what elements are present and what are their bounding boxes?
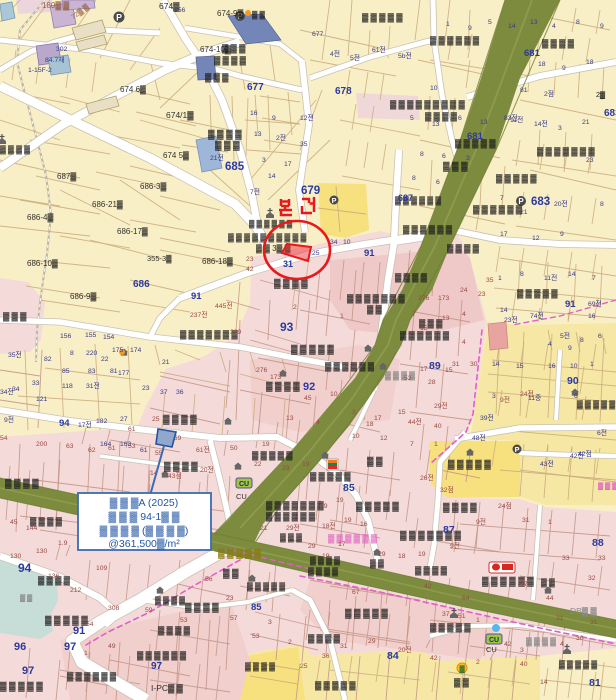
svg-text:50: 50 [230,445,238,452]
svg-text:▓ ▓ ▓ ▓: ▓ ▓ ▓ ▓ [163,414,197,425]
svg-text:10: 10 [330,391,338,398]
svg-text:53: 53 [180,617,188,624]
svg-text:5전: 5전 [350,53,360,62]
svg-text:91: 91 [364,248,375,259]
svg-text:30: 30 [470,361,478,368]
svg-text:674-10▓: 674-10▓ [200,45,231,55]
svg-text:686-18▓: 686-18▓ [202,257,233,267]
svg-text:17: 17 [284,161,292,168]
svg-text:47: 47 [520,581,528,588]
svg-text:21: 21 [260,525,268,532]
svg-text:34: 34 [330,239,338,246]
svg-text:8: 8 [580,337,584,344]
svg-text:92: 92 [303,381,315,393]
svg-text:91: 91 [565,299,576,310]
svg-text:P: P [116,12,122,22]
svg-text:220: 220 [86,350,98,357]
svg-text:200: 200 [36,441,48,448]
svg-text:677: 677 [247,82,264,93]
svg-text:83: 83 [88,368,96,375]
svg-text:2: 2 [288,639,292,646]
svg-text:685: 685 [225,161,245,173]
svg-text:1: 1 [476,617,480,624]
svg-text:39전: 39전 [480,413,494,422]
svg-text:81: 81 [110,368,118,375]
svg-text:23: 23 [246,256,254,263]
svg-text:18: 18 [538,61,546,68]
svg-text:1: 1 [548,519,552,526]
svg-text:44전: 44전 [408,417,422,426]
svg-text:▓ ▓ ▓: ▓ ▓ ▓ [443,161,468,172]
svg-text:42: 42 [430,655,438,662]
svg-text:10: 10 [570,363,578,370]
svg-text:17: 17 [420,366,428,373]
svg-text:355-3▓: 355-3▓ [147,254,172,264]
svg-text:33: 33 [32,380,40,387]
svg-text:1-15F-2: 1-15F-2 [28,67,52,74]
svg-text:▓ ▓ ▓ ▓ ▓ ▓ ▓ ▓ ▓: ▓ ▓ ▓ ▓ ▓ ▓ ▓ ▓ ▓ [390,99,465,110]
svg-text:4: 4 [462,339,466,346]
svg-text:25: 25 [300,663,308,670]
svg-text:683: 683 [531,196,550,208]
svg-text:12전: 12전 [300,113,314,122]
svg-text:▓ ▓ ▓ ▓: ▓ ▓ ▓ ▓ [443,502,477,513]
svg-text:686-21▓: 686-21▓ [92,200,123,210]
svg-text:173: 173 [438,295,450,302]
svg-text:212: 212 [70,587,82,594]
svg-text:28: 28 [428,379,436,386]
svg-text:7: 7 [412,311,416,318]
svg-text:▓ ▓: ▓ ▓ [20,594,33,602]
svg-text:▓ ▓ ▓ ▓: ▓ ▓ ▓ ▓ [308,633,341,644]
svg-text:▓ ▓ ▓ ▓: ▓ ▓ ▓ ▓ [308,567,338,577]
svg-text:85: 85 [62,368,70,375]
svg-text:156: 156 [60,333,72,340]
svg-text:17: 17 [500,231,508,238]
svg-text:1: 1 [590,361,594,368]
svg-text:16: 16 [548,363,556,370]
svg-text:19: 19 [344,517,352,524]
svg-text:61: 61 [108,445,116,452]
svg-text:▓ ▓ ▓ ▓ ▓: ▓ ▓ ▓ ▓ ▓ [577,400,615,410]
svg-text:276: 276 [418,295,430,302]
svg-text:9전: 9전 [500,395,510,404]
svg-text:19: 19 [418,551,426,558]
svg-text:48전: 48전 [472,433,486,442]
svg-text:23전: 23전 [504,315,518,324]
svg-text:4전: 4전 [330,49,340,58]
svg-text:18: 18 [366,421,374,428]
svg-text:CU: CU [489,637,499,644]
svg-text:19: 19 [322,553,330,560]
svg-text:302: 302 [56,46,68,53]
svg-text:31: 31 [556,615,564,622]
svg-text:681: 681 [467,131,484,142]
svg-text:3: 3 [352,409,356,416]
svg-text:16: 16 [588,313,596,320]
svg-text:▓ ▓ ▓ ▓ ▓: ▓ ▓ ▓ ▓ ▓ [218,548,261,559]
svg-text:229: 229 [230,329,242,336]
svg-text:130: 130 [36,548,48,555]
svg-text:@361,500▓/m²: @361,500▓/m² [108,538,180,550]
svg-text:1: 1 [84,650,88,657]
svg-text:▓ ▓ ▓ ▓ (▓ ▓ ▓ ▓): ▓ ▓ ▓ ▓ (▓ ▓ ▓ ▓) [100,525,189,537]
svg-text:7: 7 [410,441,414,448]
svg-text:▓ ▓ ▓ ▓: ▓ ▓ ▓ ▓ [266,381,300,392]
svg-text:9전: 9전 [476,517,486,526]
svg-text:1: 1 [498,275,502,282]
svg-text:14전: 14전 [534,119,548,128]
svg-text:15: 15 [420,325,428,332]
svg-text:▓ ▓ ▓ ▓: ▓ ▓ ▓ ▓ [164,461,198,472]
svg-text:▓ ▓ ▓ ▓ ▓ ▓ ▓: ▓ ▓ ▓ ▓ ▓ ▓ ▓ [266,500,324,511]
svg-text:35: 35 [300,141,308,148]
svg-text:308: 308 [108,605,120,612]
svg-text:51: 51 [458,613,466,620]
svg-text:20전: 20전 [200,465,214,474]
svg-text:▓ ▓ ▓ ▓: ▓ ▓ ▓ ▓ [395,272,428,283]
svg-text:9: 9 [560,231,564,238]
svg-text:3: 3 [262,157,266,164]
svg-text:6전: 6전 [597,428,607,437]
svg-text:156: 156 [174,7,186,14]
svg-text:14: 14 [540,679,548,686]
svg-text:687▓: 687▓ [57,172,76,182]
svg-text:14: 14 [492,361,500,368]
svg-text:10: 10 [352,433,360,440]
svg-text:683: 683 [604,108,616,119]
svg-text:687: 687 [398,193,413,203]
svg-text:69전: 69전 [588,299,602,308]
svg-text:43점: 43점 [168,472,182,480]
svg-text:33: 33 [598,555,606,562]
svg-text:▓ ▓ ▓ ▓ ▓: ▓ ▓ ▓ ▓ ▓ [310,471,351,482]
svg-text:▓ ▓ ▓ ▓ ▓: ▓ ▓ ▓ ▓ ▓ [559,660,597,670]
svg-text:5: 5 [488,19,492,26]
svg-text:26전: 26전 [420,473,434,482]
svg-text:31: 31 [283,259,293,269]
svg-text:61전: 61전 [196,445,210,454]
svg-text:8: 8 [576,19,580,26]
svg-text:CU: CU [239,481,249,488]
svg-text:2▓: 2▓ [596,91,606,99]
svg-text:▓ ▓ ▓ ▓: ▓ ▓ ▓ ▓ [158,625,191,636]
svg-text:674 6▓: 674 6▓ [120,85,146,95]
svg-text:▓ ▓ ▓: ▓ ▓ ▓ [280,533,302,543]
svg-text:23: 23 [586,157,594,164]
svg-text:15: 15 [516,363,524,370]
svg-text:45: 45 [304,395,312,402]
svg-text:▓ ▓: ▓ ▓ [223,568,239,579]
svg-text:▓ ▓ ▓ ▓ ▓: ▓ ▓ ▓ ▓ ▓ [362,12,403,23]
svg-text:3: 3 [492,393,496,400]
svg-text:▓ ▓ ▓ ▓: ▓ ▓ ▓ ▓ [447,243,480,254]
svg-text:54: 54 [0,435,8,442]
svg-text:96: 96 [14,641,26,653]
svg-text:3: 3 [520,647,524,654]
svg-text:23: 23 [478,291,486,298]
svg-text:49: 49 [108,643,116,650]
svg-text:445전: 445전 [215,301,233,310]
svg-text:29: 29 [320,503,328,510]
svg-text:174: 174 [130,347,142,354]
svg-text:56: 56 [205,576,213,583]
svg-text:57: 57 [230,615,238,622]
svg-text:▓ ▓ ▓ ▓: ▓ ▓ ▓ ▓ [214,55,247,66]
svg-text:6: 6 [458,115,462,122]
svg-text:42: 42 [504,641,512,648]
svg-text:31: 31 [340,643,348,650]
svg-text:▓ ▓ ▓ ▓ ▓: ▓ ▓ ▓ ▓ ▓ [430,622,471,633]
svg-text:24: 24 [460,287,468,294]
svg-text:22: 22 [101,356,109,363]
svg-text:85: 85 [251,602,262,613]
svg-text:4: 4 [548,341,552,348]
svg-text:29: 29 [308,543,316,550]
svg-text:▓ ▓: ▓ ▓ [367,456,383,467]
svg-text:▓ ▓ ▓: ▓ ▓ ▓ [215,140,240,151]
svg-text:9: 9 [568,345,572,352]
svg-text:10: 10 [343,239,351,246]
svg-text:40: 40 [434,423,442,430]
svg-text:97: 97 [22,665,34,677]
svg-text:▓ ▓ ▓ ▓ ▓ ▓: ▓ ▓ ▓ ▓ ▓ ▓ [137,650,187,661]
svg-text:678: 678 [335,86,352,97]
svg-text:36: 36 [176,389,184,396]
svg-text:▓ ▓ ▓ ▓ ▓: ▓ ▓ ▓ ▓ ▓ [517,288,558,299]
svg-text:173: 173 [270,374,282,381]
svg-text:686-4▓: 686-4▓ [27,213,53,223]
svg-text:25: 25 [312,250,320,257]
svg-text:27: 27 [120,416,128,423]
svg-text:4: 4 [316,419,320,426]
svg-text:118: 118 [62,383,73,390]
svg-text:CU: CU [236,492,247,501]
svg-text:▓ ▓ ▓ ▓ ▓ ▓: ▓ ▓ ▓ ▓ ▓ ▓ [473,204,523,215]
svg-text:4: 4 [560,641,564,648]
svg-text:▓ ▓ ▓ ▓: ▓ ▓ ▓ ▓ [0,145,30,155]
svg-text:91: 91 [191,291,202,302]
svg-text:17: 17 [374,415,382,422]
svg-text:42: 42 [246,266,254,273]
svg-text:22: 22 [254,461,262,468]
svg-text:9전: 9전 [450,541,460,550]
svg-text:84.7재: 84.7재 [45,56,64,64]
svg-text:686-3▓: 686-3▓ [140,182,166,192]
svg-text:21: 21 [582,119,590,126]
svg-text:23: 23 [226,595,234,602]
svg-text:▓ ▓ ▓ ▓: ▓ ▓ ▓ ▓ [155,596,185,606]
svg-text:85: 85 [343,482,355,494]
svg-text:686: 686 [133,279,150,290]
svg-text:13: 13 [254,131,262,138]
svg-text:▓ ▓ ▓: ▓ ▓ ▓ [3,311,27,322]
svg-text:45: 45 [10,519,18,526]
svg-text:18: 18 [586,59,594,66]
svg-text:29전: 29전 [286,523,300,532]
svg-text:97: 97 [151,661,163,672]
svg-text:▓ ▓: ▓ ▓ [370,559,384,569]
svg-text:29: 29 [378,551,386,558]
svg-text:136: 136 [48,573,60,580]
svg-text:25: 25 [152,416,160,423]
svg-text:144: 144 [26,525,38,532]
svg-text:62: 62 [88,447,96,454]
svg-text:▓ ▓ ▓ ▓ ▓: ▓ ▓ ▓ ▓ ▓ [345,608,388,619]
svg-text:90: 90 [567,375,579,387]
svg-text:36: 36 [322,653,330,660]
svg-text:677: 677 [312,31,324,38]
svg-text:▓ ▓: ▓ ▓ [454,677,470,688]
svg-text:9: 9 [468,25,472,32]
svg-text:14: 14 [508,23,516,30]
svg-text:15: 15 [398,409,406,416]
svg-text:674-9▓: 674-9▓ [217,9,243,19]
svg-text:▓ ▓ ▓ ▓: ▓ ▓ ▓ ▓ [5,478,39,489]
svg-text:24전: 24전 [520,389,534,398]
svg-text:182: 182 [96,418,108,425]
svg-text:32점: 32점 [440,486,454,494]
svg-text:32: 32 [588,575,596,582]
svg-text:▓ ▓ ▓ ▓ ▓ ▓: ▓ ▓ ▓ ▓ ▓ ▓ [430,35,480,46]
svg-text:15: 15 [445,367,453,374]
svg-text:1: 1 [340,313,344,320]
svg-text:33: 33 [562,555,570,562]
svg-text:31전: 31전 [86,381,100,390]
svg-text:681: 681 [524,48,541,59]
svg-text:18전: 18전 [322,521,336,530]
svg-text:14: 14 [268,173,276,180]
svg-text:686-17▓: 686-17▓ [117,227,148,237]
svg-text:1: 1 [446,21,450,28]
svg-text:7: 7 [500,195,504,202]
svg-text:5b전: 5b전 [398,51,412,60]
svg-text:▓ ▓ ▓ ▓ ▓ ▓ ▓: ▓ ▓ ▓ ▓ ▓ ▓ ▓ [347,293,405,304]
svg-text:14: 14 [500,307,508,314]
svg-text:19: 19 [336,497,344,504]
svg-text:1: 1 [434,441,438,448]
svg-text:17: 17 [338,541,346,548]
svg-text:6: 6 [598,333,602,340]
svg-text:6: 6 [442,153,446,160]
svg-text:35: 35 [486,277,494,284]
svg-text:37: 37 [442,611,450,618]
svg-text:20전: 20전 [398,645,412,654]
svg-text:▓ ▓ ▓ ▓: ▓ ▓ ▓ ▓ [245,662,275,672]
svg-text:13: 13 [480,119,488,126]
svg-text:31: 31 [590,619,598,626]
svg-text:679: 679 [301,185,320,197]
svg-text:8: 8 [420,151,424,158]
svg-text:▓ ▓ ▓ ▓ ▓ ▓: ▓ ▓ ▓ ▓ ▓ ▓ [403,224,453,235]
svg-text:▓ ▓ ▓ ▓: ▓ ▓ ▓ ▓ [542,38,575,49]
svg-text:3: 3 [268,619,272,626]
svg-text:▓ ▓ ▓ ▓ ▓ ▓: ▓ ▓ ▓ ▓ ▓ ▓ [249,219,293,229]
svg-text:▓ ▓ ▓A (2025): ▓ ▓ ▓A (2025) [110,497,179,509]
svg-text:74전: 74전 [530,311,544,320]
svg-text:37: 37 [160,389,168,396]
svg-text:42: 42 [424,583,432,590]
svg-text:61: 61 [140,447,148,454]
svg-text:▓ ▓ ▓ ▓: ▓ ▓ ▓ ▓ [425,111,458,122]
svg-text:175: 175 [112,347,124,354]
svg-text:3: 3 [558,125,562,132]
svg-text:CU: CU [486,645,497,654]
svg-text:4: 4 [552,23,556,30]
svg-text:54: 54 [86,621,94,628]
svg-text:81: 81 [520,87,528,94]
svg-text:31: 31 [522,517,530,524]
svg-text:155: 155 [85,332,97,339]
svg-text:11전: 11전 [510,115,523,124]
svg-text:29전: 29전 [434,401,448,410]
svg-text:14: 14 [568,271,576,278]
svg-text:▓ ▓ ▓ ▓ ▓ ▓: ▓ ▓ ▓ ▓ ▓ ▓ [325,361,375,372]
svg-text:29: 29 [282,465,290,472]
svg-text:59: 59 [145,607,153,614]
svg-text:DB▓ ▓: DB▓ ▓ [570,606,597,617]
svg-text:9: 9 [272,115,276,122]
svg-text:53: 53 [128,443,136,450]
svg-text:6: 6 [436,179,440,186]
svg-text:13: 13 [530,19,538,26]
svg-text:16: 16 [360,521,368,528]
svg-text:93: 93 [280,320,294,334]
svg-text:23: 23 [142,385,150,392]
svg-text:20전: 20전 [554,199,568,208]
svg-text:13: 13 [442,315,450,322]
svg-text:P: P [332,196,337,205]
svg-text:8: 8 [600,201,604,208]
svg-text:12: 12 [380,435,388,442]
svg-text:▓ ▓ ▓ ▓: ▓ ▓ ▓ ▓ [415,565,448,576]
svg-text:12: 12 [532,235,540,242]
svg-text:2점: 2점 [544,90,554,98]
svg-text:▓ ▓ ▓ ▓ ▓: ▓ ▓ ▓ ▓ ▓ [496,173,537,184]
svg-text:276: 276 [256,367,268,374]
svg-text:674/1▓: 674/1▓ [166,110,194,121]
svg-text:29: 29 [368,638,376,645]
svg-text:674 5▓: 674 5▓ [163,151,189,161]
svg-text:180▓ ▓: 180▓ ▓ [42,1,69,11]
svg-text:35전: 35전 [8,350,22,359]
svg-text:81: 81 [589,677,601,689]
svg-text:▓ ▓ ▓ ▓ ▓ ▓: ▓ ▓ ▓ ▓ ▓ ▓ [67,671,117,682]
svg-text:31: 31 [452,361,460,368]
svg-text:17전: 17전 [78,420,92,429]
svg-text:8: 8 [70,350,74,357]
svg-text:▓ ▓ ▓ ▓ ▓: ▓ ▓ ▓ ▓ ▓ [448,459,491,470]
svg-text:21: 21 [520,209,528,216]
svg-text:44: 44 [546,595,554,602]
svg-text:21: 21 [162,359,170,366]
svg-text:61전: 61전 [372,45,386,54]
svg-text:52: 52 [404,375,412,382]
svg-text:11전: 11전 [544,273,557,282]
svg-text:▓ ▓ ▓ ▓ ▓ ▓: ▓ ▓ ▓ ▓ ▓ ▓ [266,511,316,522]
svg-text:▓ ▓ ▓ ▓: ▓ ▓ ▓ ▓ [208,129,242,140]
svg-text:▓: ▓ [459,665,465,673]
svg-text:▓ ▓ ▓ ▓ ▓: ▓ ▓ ▓ ▓ ▓ [247,582,285,592]
svg-text:91: 91 [73,625,85,637]
svg-text:19: 19 [262,441,270,448]
svg-text:686-9▓: 686-9▓ [70,292,96,302]
svg-text:2전: 2전 [276,133,286,142]
svg-text:4: 4 [462,311,466,318]
svg-text:34전: 34전 [0,387,14,396]
svg-text:30: 30 [576,635,584,642]
svg-text:109: 109 [96,565,108,572]
